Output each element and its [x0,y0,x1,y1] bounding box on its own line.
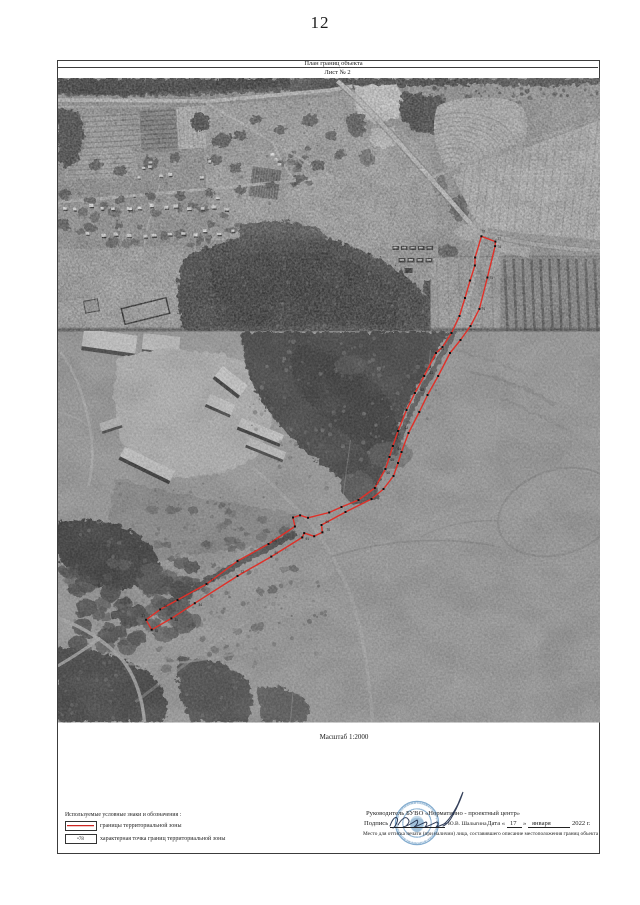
svg-text:50: 50 [274,551,278,555]
svg-text:75: 75 [489,276,493,280]
svg-text:36: 36 [163,604,167,608]
svg-text:74: 74 [481,307,485,311]
svg-text:66: 66 [386,471,390,475]
svg-text:38: 38 [154,629,158,633]
svg-text:65: 65 [390,458,394,462]
svg-text:62: 62 [420,388,424,392]
svg-text:106: 106 [271,539,277,543]
svg-text:71: 71 [210,578,214,582]
svg-text:69: 69 [325,520,329,524]
svg-text:35: 35 [174,618,178,622]
svg-text:37: 37 [141,614,145,618]
svg-text:78: 78 [481,230,485,234]
svg-text:64: 64 [397,447,401,451]
svg-text:67: 67 [375,482,379,486]
svg-text:91: 91 [305,537,309,541]
svg-text:70: 70 [326,528,330,532]
svg-text:77: 77 [497,237,501,241]
svg-text:72: 72 [240,570,244,574]
svg-text:63: 63 [404,426,408,430]
svg-text:59: 59 [440,347,444,351]
svg-text:61: 61 [429,371,433,375]
svg-text:76: 76 [497,245,501,249]
svg-text:34: 34 [198,603,202,607]
